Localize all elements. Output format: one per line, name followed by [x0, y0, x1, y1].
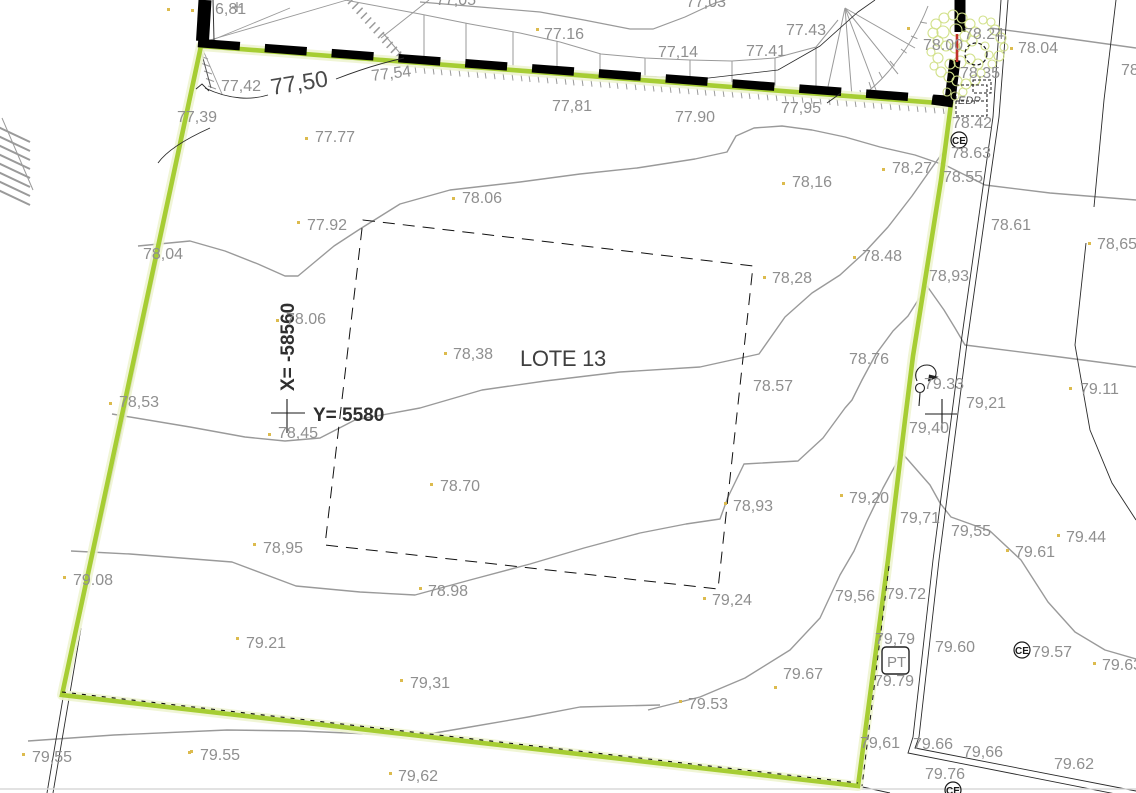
svg-text:79.63: 79.63 [1102, 657, 1136, 674]
svg-text:78,27: 78,27 [892, 160, 932, 177]
svg-text:79.79: 79.79 [874, 673, 914, 690]
svg-text:79,79: 79,79 [875, 631, 915, 648]
svg-text:77.90: 77.90 [675, 109, 715, 126]
svg-text:79,66: 79,66 [963, 744, 1003, 761]
svg-text:77,50: 77,50 [269, 65, 330, 100]
svg-text:79,61: 79,61 [860, 735, 900, 752]
svg-text:77,81: 77,81 [552, 98, 592, 115]
svg-text:79,56: 79,56 [835, 588, 875, 605]
svg-text:78,65: 78,65 [1097, 236, 1136, 253]
svg-text:CE: CE [946, 786, 960, 793]
svg-text:78.04: 78.04 [1018, 40, 1058, 57]
svg-text:79.08: 79.08 [73, 572, 113, 589]
svg-text:78.63: 78.63 [951, 145, 991, 162]
svg-text:79.72: 79.72 [886, 586, 926, 603]
svg-text:CE: CE [1015, 646, 1029, 657]
svg-text:77.77: 77.77 [315, 129, 355, 146]
svg-text:78.55: 78.55 [943, 169, 983, 186]
svg-text:78.98: 78.98 [428, 583, 468, 600]
svg-text:79.61: 79.61 [1015, 544, 1055, 561]
svg-text:77.43: 77.43 [786, 22, 826, 39]
svg-text:EDP: EDP [958, 95, 981, 107]
svg-text:78.76: 78.76 [849, 351, 889, 368]
svg-text:79.57: 79.57 [1032, 644, 1072, 661]
svg-text:79.60: 79.60 [935, 639, 975, 656]
svg-text:77,39: 77,39 [177, 109, 217, 126]
svg-text:78.57: 78.57 [753, 378, 793, 395]
svg-text:79.44: 79.44 [1066, 529, 1106, 546]
svg-text:79.66: 79.66 [913, 736, 953, 753]
svg-text:79.62: 79.62 [1054, 756, 1094, 773]
svg-text:79,31: 79,31 [410, 675, 450, 692]
svg-text:79.33: 79.33 [924, 376, 964, 393]
svg-text:78.00: 78.00 [923, 37, 963, 54]
svg-text:77,05: 77,05 [436, 0, 476, 9]
svg-text:78,93: 78,93 [733, 498, 773, 515]
svg-text:78,28: 78,28 [772, 270, 812, 287]
svg-text:77,14: 77,14 [658, 44, 698, 61]
svg-text:79,20: 79,20 [849, 490, 889, 507]
svg-text:78.70: 78.70 [440, 478, 480, 495]
svg-text:LOTE 13: LOTE 13 [520, 346, 606, 371]
svg-text:77,95: 77,95 [781, 100, 821, 117]
svg-text:77.41: 77.41 [746, 43, 786, 60]
svg-text:77,03: 77,03 [686, 0, 726, 11]
svg-text:78.35: 78.35 [960, 65, 1000, 82]
svg-text:77.16: 77.16 [544, 26, 584, 43]
svg-text:79.11: 79.11 [1080, 381, 1119, 398]
svg-text:78.48: 78.48 [862, 248, 902, 265]
svg-text:78,93: 78,93 [929, 268, 969, 285]
svg-text:77,54: 77,54 [370, 63, 412, 85]
svg-text:78.24: 78.24 [964, 26, 1004, 43]
svg-text:78.06: 78.06 [286, 311, 326, 328]
svg-text:78,16: 78,16 [792, 174, 832, 191]
svg-text:78,38: 78,38 [453, 346, 493, 363]
svg-text:79,55: 79,55 [951, 523, 991, 540]
svg-text:79.21: 79.21 [246, 635, 286, 652]
svg-text:6,81: 6,81 [215, 1, 246, 18]
svg-text:79,40: 79,40 [909, 420, 949, 437]
svg-text:77.92: 77.92 [307, 217, 347, 234]
svg-text:79,71: 79,71 [900, 510, 940, 527]
svg-text:77,42: 77,42 [221, 78, 261, 95]
svg-text:79.55: 79.55 [200, 747, 240, 764]
svg-text:78.61: 78.61 [991, 217, 1031, 234]
svg-text:79.67: 79.67 [783, 666, 823, 683]
svg-text:Y= 5580: Y= 5580 [313, 405, 384, 426]
svg-text:PT: PT [887, 654, 906, 671]
svg-text:78,45: 78,45 [278, 425, 318, 442]
svg-text:78: 78 [1121, 62, 1136, 79]
svg-text:78,04: 78,04 [143, 246, 183, 263]
svg-text:78,95: 78,95 [263, 540, 303, 557]
svg-text:79.76: 79.76 [925, 766, 965, 783]
svg-text:79,24: 79,24 [712, 592, 752, 609]
svg-text:79,62: 79,62 [398, 768, 438, 785]
svg-text:79,55: 79,55 [32, 749, 72, 766]
svg-text:79,21: 79,21 [966, 395, 1006, 412]
svg-text:78.06: 78.06 [462, 190, 502, 207]
svg-text:79.53: 79.53 [688, 696, 728, 713]
svg-text:78.42: 78.42 [952, 115, 992, 132]
svg-text:78,53: 78,53 [119, 394, 159, 411]
